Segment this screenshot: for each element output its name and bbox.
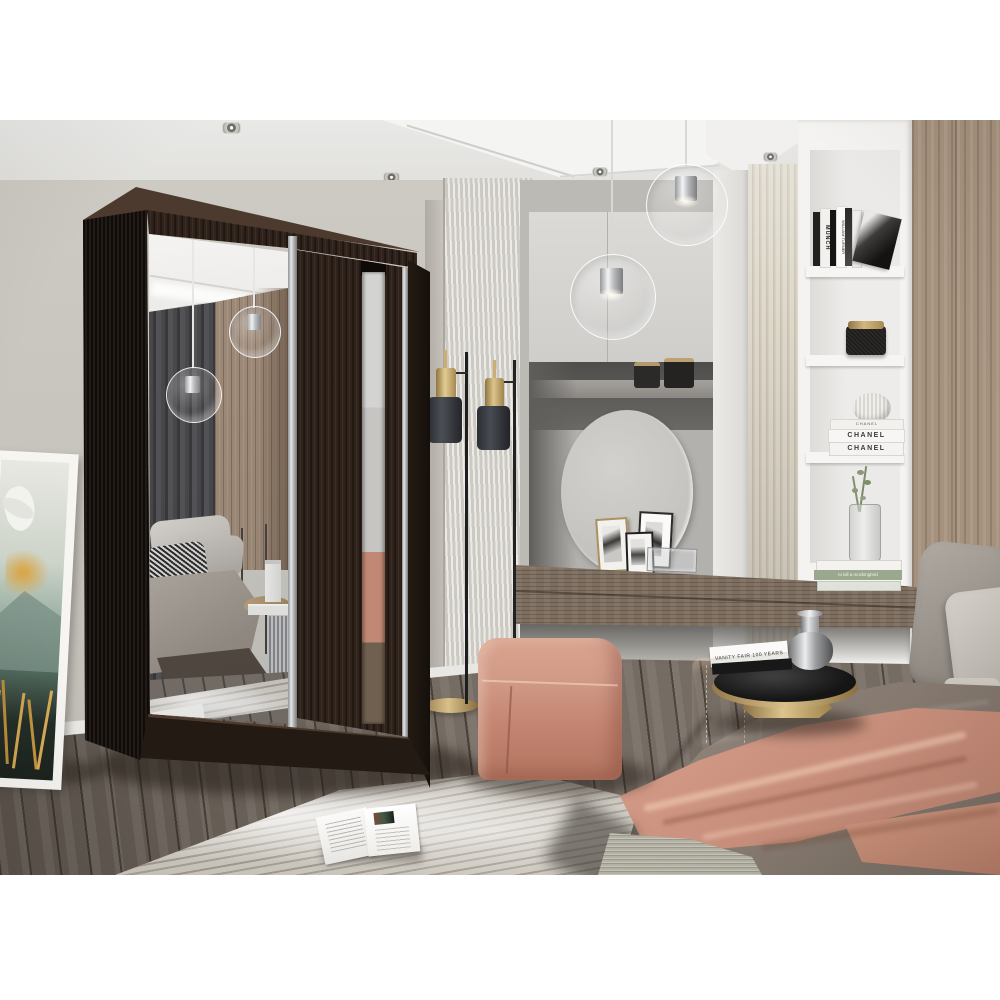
product-photo: MUNCH WILLIAM TURNER CHANEL CHANEL CHANE… xyxy=(0,0,1000,1000)
chrome-vase-lip xyxy=(797,610,823,617)
wardrobe-right-gable xyxy=(408,260,430,790)
wardrobe-right-door xyxy=(297,246,408,746)
ceiling-spotlight xyxy=(592,167,608,177)
floor-lamp-finial xyxy=(444,350,447,370)
floor-lamp-arm xyxy=(456,372,468,374)
chanel-book-1: CHANEL xyxy=(828,429,905,443)
right-door-wood xyxy=(297,246,408,746)
pendant-cord xyxy=(685,120,687,166)
chanel-book-2-label: CHANEL xyxy=(830,443,903,454)
book-spine xyxy=(845,208,852,266)
eucalyptus-leaf xyxy=(852,488,858,493)
artwork-grass xyxy=(1,680,8,764)
pendant-bulb-glow xyxy=(598,288,625,302)
wardrobe-door-track xyxy=(288,236,297,742)
ceiling-spotlight xyxy=(763,152,778,162)
floor-lamp-gold-cap xyxy=(436,368,456,399)
bedroom-photo: MUNCH WILLIAM TURNER CHANEL CHANEL CHANE… xyxy=(0,120,1000,875)
glass-display-box xyxy=(647,547,698,573)
wardrobe-left-side xyxy=(83,208,151,760)
flat-book xyxy=(817,581,901,591)
right-door-edge-strip xyxy=(402,264,408,739)
artwork-grass xyxy=(12,693,26,769)
book-spine xyxy=(813,212,820,266)
mirror-glass-tint xyxy=(149,228,289,728)
right-door-mirror-strip xyxy=(362,272,385,724)
photo-frame-art xyxy=(631,539,646,565)
floor-lamp-base xyxy=(424,698,478,713)
pouf xyxy=(478,638,622,780)
artwork-canvas xyxy=(0,459,69,780)
wardrobe-mirror-door xyxy=(149,228,289,728)
artwork-grass xyxy=(36,690,53,769)
chanel-book-1-label: CHANEL xyxy=(829,430,904,441)
shelf-board xyxy=(806,355,904,366)
artwork-gold-foliage xyxy=(4,548,50,598)
leather-basket-stitch xyxy=(706,665,708,743)
ceiling-spotlight xyxy=(222,122,241,134)
floor-lamp-finial xyxy=(493,360,496,380)
magazine-text-lines xyxy=(375,826,411,851)
floor-lamp-shade xyxy=(477,406,510,450)
floor-lamp-arm xyxy=(504,381,516,383)
floor-lamp-pole xyxy=(513,360,516,642)
candle-lid-gold xyxy=(848,321,884,329)
flat-book-mockingbird-label: to kill a mockingbird xyxy=(814,570,902,580)
floor-lamp-shade xyxy=(428,397,462,443)
eucalyptus-leaf xyxy=(864,480,871,485)
floor-lamp-pole xyxy=(465,352,468,704)
photo-frame-art xyxy=(602,525,622,562)
artwork-grass xyxy=(27,699,37,769)
candle-jar-black xyxy=(846,326,886,355)
pendant-cord xyxy=(611,120,613,256)
floor-lamp-gold-cap xyxy=(485,378,504,408)
glass-vase xyxy=(849,504,881,564)
eucalyptus-leaf xyxy=(857,470,864,475)
chrome-vase-body xyxy=(788,632,833,670)
flat-book-mockingbird: to kill a mockingbird xyxy=(814,570,902,580)
pendant-bulb-glow xyxy=(673,195,699,208)
eucalyptus-leaf xyxy=(860,496,866,500)
artwork-grass xyxy=(0,690,1,759)
chanel-book-2: CHANEL xyxy=(829,442,904,456)
candle-jar xyxy=(634,362,660,388)
candle-jar xyxy=(664,358,694,388)
magazine-photo-block xyxy=(373,811,394,825)
chanel-book-thin-label: CHANEL xyxy=(831,420,903,428)
